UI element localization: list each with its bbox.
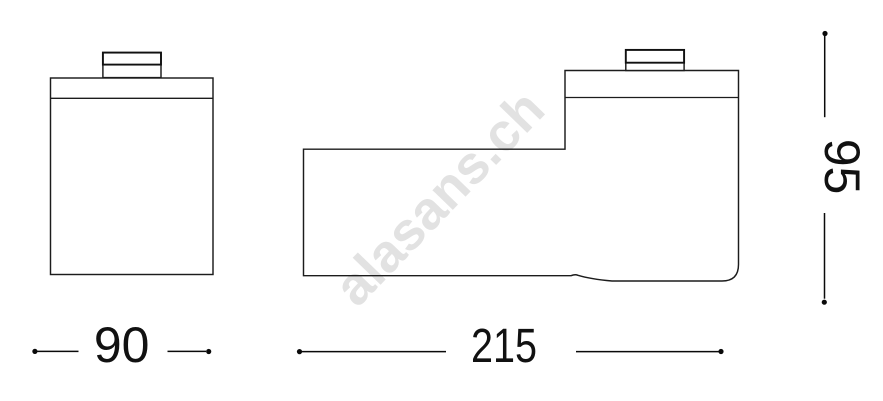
svg-text:90: 90 xyxy=(94,317,150,373)
svg-text:95: 95 xyxy=(814,139,870,195)
svg-text:215: 215 xyxy=(471,320,537,373)
